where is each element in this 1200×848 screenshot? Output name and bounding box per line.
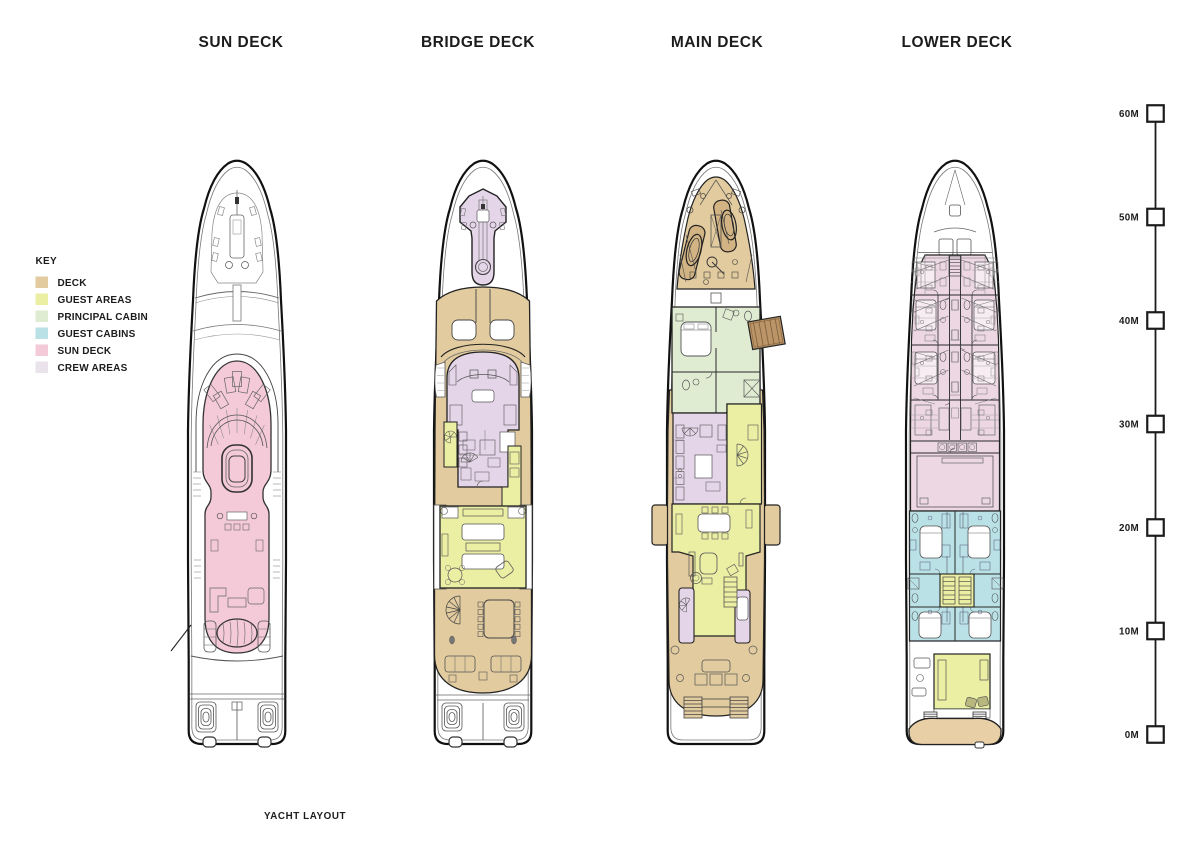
svg-text:0M: 0M xyxy=(1125,730,1139,741)
svg-text:BRIDGE DECK: BRIDGE DECK xyxy=(421,34,535,51)
svg-text:60M: 60M xyxy=(1119,109,1139,120)
svg-text:40M: 40M xyxy=(1119,316,1139,327)
svg-text:50M: 50M xyxy=(1119,213,1139,224)
svg-text:YACHT LAYOUT: YACHT LAYOUT xyxy=(264,811,346,822)
svg-text:MAIN DECK: MAIN DECK xyxy=(671,34,764,51)
svg-text:20M: 20M xyxy=(1119,523,1139,534)
svg-text:GUEST AREAS: GUEST AREAS xyxy=(58,295,132,306)
svg-text:CREW AREAS: CREW AREAS xyxy=(58,363,128,374)
svg-text:LOWER DECK: LOWER DECK xyxy=(902,34,1013,51)
svg-text:DECK: DECK xyxy=(58,278,88,289)
svg-text:SUN DECK: SUN DECK xyxy=(58,346,112,357)
svg-text:PRINCIPAL CABIN: PRINCIPAL CABIN xyxy=(58,312,148,323)
svg-text:KEY: KEY xyxy=(36,256,57,267)
svg-text:10M: 10M xyxy=(1119,627,1139,638)
svg-text:30M: 30M xyxy=(1119,420,1139,431)
svg-text:GUEST CABINS: GUEST CABINS xyxy=(58,329,136,340)
svg-text:SUN DECK: SUN DECK xyxy=(199,34,284,51)
